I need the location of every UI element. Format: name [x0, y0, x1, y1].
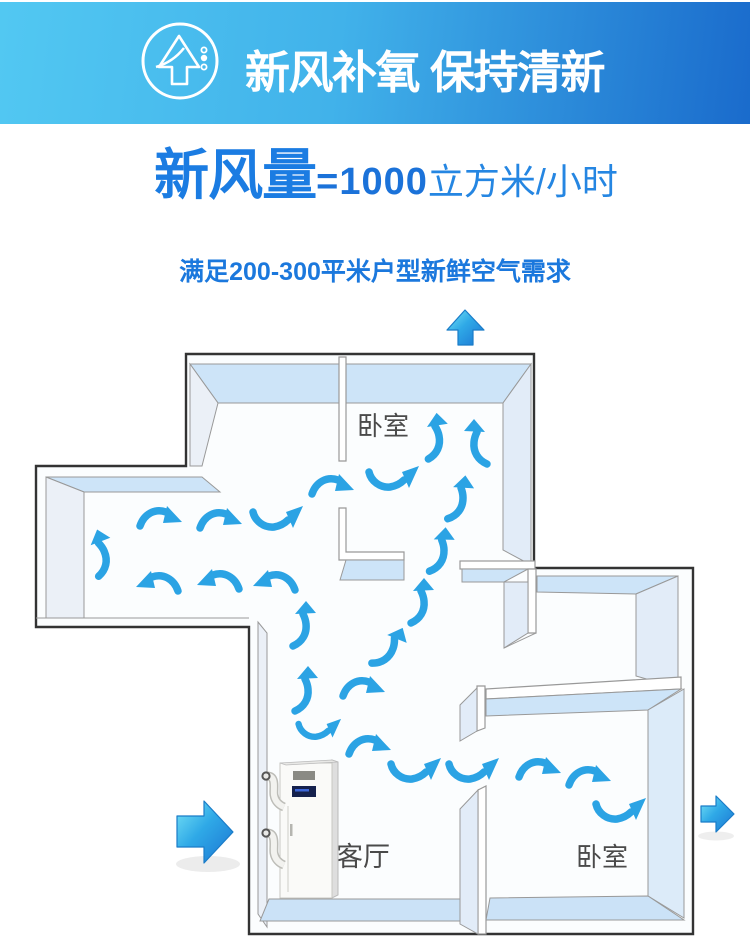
svg-text:卧室: 卧室 — [357, 411, 409, 441]
svg-text:客厅: 客厅 — [336, 842, 390, 872]
svg-text:卧室: 卧室 — [576, 842, 628, 872]
